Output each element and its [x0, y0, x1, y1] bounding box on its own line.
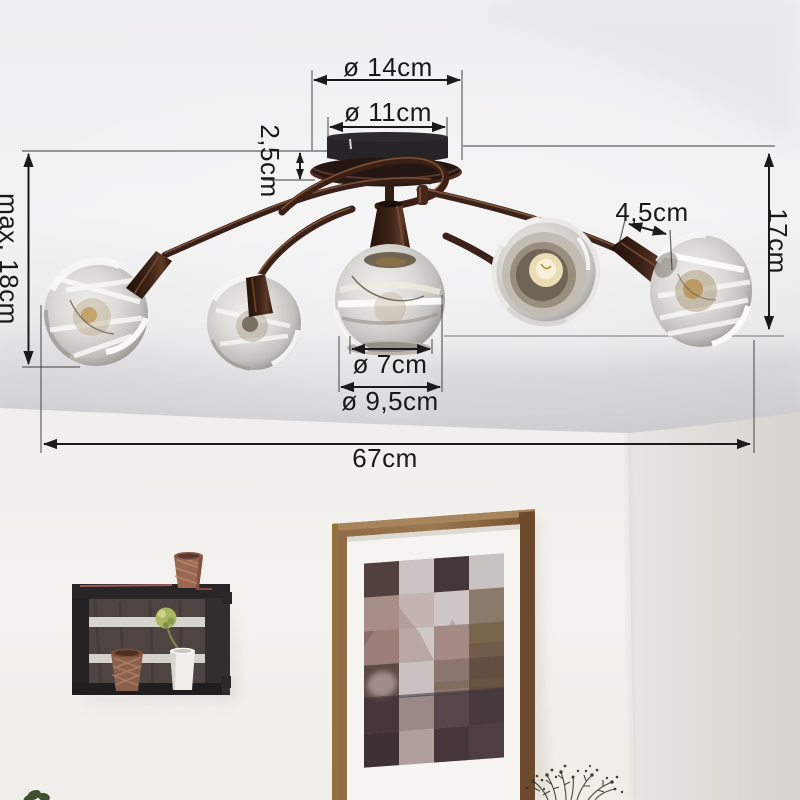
svg-text:ø 7cm: ø 7cm [353, 349, 428, 379]
svg-text:4,5cm: 4,5cm [615, 197, 688, 227]
svg-text:17cm: 17cm [763, 208, 793, 274]
svg-text:max. 18cm: max. 18cm [0, 193, 24, 325]
svg-text:ø 11cm: ø 11cm [344, 97, 432, 127]
svg-text:ø 14cm: ø 14cm [343, 52, 433, 82]
svg-text:2,5cm: 2,5cm [255, 124, 285, 197]
svg-text:ø 9,5cm: ø 9,5cm [341, 386, 438, 416]
svg-text:67cm: 67cm [352, 443, 418, 473]
